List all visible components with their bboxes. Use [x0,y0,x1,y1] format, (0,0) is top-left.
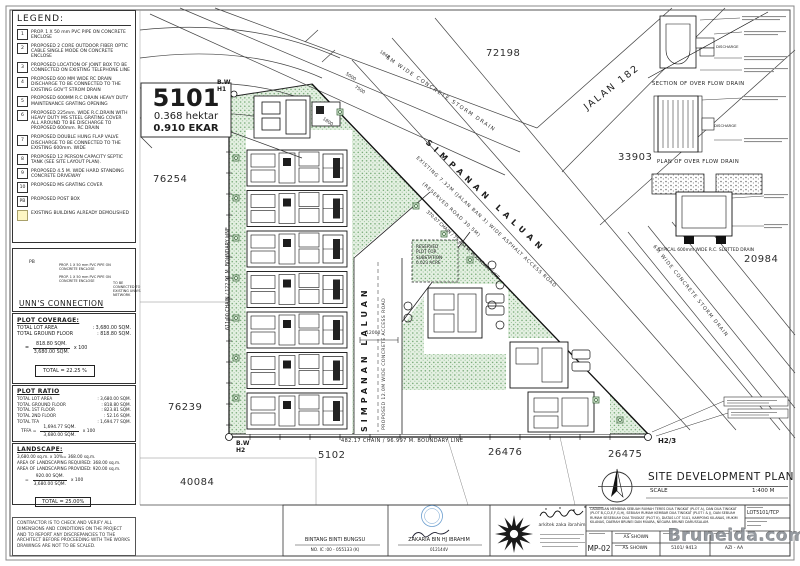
plot-number-76254: 76254 [153,174,187,185]
fraction-numerator: 818.80 SQM. [33,342,70,349]
project-number: LOT5101/TCP [747,511,779,516]
legend-item: 8PROPOSED 12 PERSON CAPACITY SEPTIC TANK… [17,154,131,165]
legend-text: PROPOSED 600 MM WIDE RC DRAIN DISCHARGE … [31,77,131,93]
legend-key: 1 [17,29,28,40]
legend-key: 7 [17,135,28,146]
landscape-line: AREA OF LANDSCAPING PROVIDED: 920.00 sq.… [17,466,131,472]
fraction-numerator: 920.00 SQM. [33,474,67,481]
landscape-panel: LANDSCAPE: 3,680.00 sq.m. x 10%= 368.00 … [12,443,136,505]
unns-pipe-label-1: PROP. 1 X 50 mm PVC PIPE ON CONCRETE ENC… [59,263,129,271]
legend-key: PB [17,196,28,207]
demolished-swatch [17,210,28,221]
detail-plan-title: PLAN OF OVER FLOW DRAIN [657,159,739,165]
detail2-microtext [742,96,788,142]
site-hektar: 0.368 hektar [141,111,231,122]
legend-key: 9 [17,168,28,179]
marker-bw-h1: B.WH1 [217,80,230,94]
scale-label: SCALE [650,488,668,494]
contractor-note-panel: CONTRACTOR IS TO CHECK AND VERIFY ALL DI… [12,517,136,556]
legend-item: 10PROPOSED MS GRATING COVER [17,182,131,193]
plot-number-26476: 26476 [488,447,522,458]
bw-h1-marker [231,91,237,97]
fraction-prefix: = [25,478,29,483]
landscape-line: AREA OF LANDSCAPING REQUIRED: 368.00 sq.… [17,460,131,466]
signature1-name: BINTANG BINTI BUNGSU [287,537,383,543]
landscape-title: LANDSCAPE: [17,446,131,453]
site-ekar: 0.910 EKAR [141,123,231,134]
table-row: TOTAL TFA: 1,694.77 SQM. [17,419,131,425]
drawing-number: MP-02 [587,544,611,553]
substation-label: RESERVED PLOT FOR SUBSTATION 0.023 ACRE [416,244,442,265]
plot-number-20984: 20984 [744,254,778,265]
plot-number-26475: 26475 [608,449,642,460]
fraction-denominator: 3,680.00 SQM. [40,432,78,438]
table-row: TOTAL GROUND FLOOR: 818.80 SQM. [17,332,131,338]
legend-key: 8 [17,154,28,165]
plot-coverage-panel: PLOT COVERAGE: TOTAL LOT AREA: 3,680.00 … [12,313,136,384]
fraction-suffix: x 100 [74,346,88,351]
detail-slotted-drain [652,174,788,244]
substation-line: SUBSTATION [416,255,442,260]
legend-item: 1PROP. 1 X 50 mm PVC PIPE ON CONCRETE EN… [17,29,131,40]
legend-item: 4PROPOSED 600 MM WIDE RC DRAIN DISCHARGE… [17,77,131,93]
legend-key: 10 [17,182,28,193]
legend-item: 9PROPOSED 4.5 M. WIDE HARD STANDING CONC… [17,168,131,179]
legend-text: PROPOSED 4.5 M. WIDE HARD STANDING CONCR… [31,168,131,179]
legend-key: 3 [17,62,28,73]
plot-ratio-title: PLOT RATIO [17,388,131,395]
coverage-fraction: = 818.80 SQM.3,680.00 SQM. x 100 [25,342,131,355]
scale-value: 1:400 M [752,488,774,494]
architect-stamp-star [495,515,533,553]
drawing-title: SITE DEVELOPMENT PLAN [648,471,794,483]
road-label-simpanan-vert: SIMPANAN LALUAN [360,286,369,432]
unns-arrow-note: TO BE CONNECTED TO EXISTING UNN'S NETWOR… [113,281,145,297]
detail-section-title: SECTION OF OVER FLOW DRAIN [652,81,745,87]
legend-key: 6 [17,110,28,121]
legend-text: EXISTING BUILDING ALREADY DEMOLISHED [31,210,129,216]
marker-h23: H2/3 [658,437,676,445]
signature1-id: NO. IC :00 - 055133 (K) [287,547,383,552]
legend-key: 5 [17,96,28,107]
legend-text: PROPOSED LOCATION OF JOINT BOX TO BE CON… [31,62,131,73]
discharge-label-1: DISCHARGE [716,44,739,49]
legend-text: PROP. 1 X 50 mm PVC PIPE ON CONCRETE ENC… [31,29,131,40]
legend-item: 7PROPOSED DOUBLE HUNG FLAP VALVE DISCHAR… [17,135,131,151]
ratio-fraction: TFFA = 1,694.77 SQM.3,680.00 SQM. x 100 [21,425,131,438]
plot-number-33903: 33903 [618,152,652,163]
firm-name: arkitek zaka ibrahim [534,523,590,528]
boundary-label-bottom: 482.17 CHAIN / 96.997 M. BOUNDARY LINE [341,438,463,444]
legend-text: PROPOSED 2 CORE OUTDOOR FIBER OPTIC CABL… [31,43,131,59]
legend-text: PROPOSED POST BOX [31,196,80,202]
detail-slotted-title: TYPICAL 600mm WIDE R.C. SLOTTED DRAIN [658,248,754,253]
marker-bw-h2: B.WH2 [236,441,249,455]
legend-key: 4 [17,77,28,88]
legend-item: 2PROPOSED 2 CORE OUTDOOR FIBER OPTIC CAB… [17,43,131,59]
row-value: : 1,694.77 SQM. [97,419,131,425]
fraction-suffix: x 100 [83,429,95,434]
row-value: : 818.80 SQM. [97,332,131,338]
scale-as-shown-2: AS SHOWN [613,546,657,551]
contractor-note: CONTRACTOR IS TO CHECK AND VERIFY ALL DI… [17,521,131,550]
legend-text: PROPOSED 600MM R.C DRAIN HEAVY DUTY MAIN… [31,96,131,107]
detail1-microtext [742,16,788,72]
legend-item: 6PROPOSED 225mm. WIDE R.C.DRAIN WITH HEA… [17,110,131,132]
legend-text: PROPOSED MS GRATING COVER [31,182,103,188]
jawi-script [540,506,586,517]
reference-number: 5101/ 9413 [662,546,706,551]
signature2-name: ZAKARIA BIN HJ IBRAHIM [392,537,486,543]
landscape-fraction: = 920.00 SQM.3,680.00 SQM. x 100 [25,474,131,487]
plot-number-76239: 76239 [168,402,202,413]
row-label: TOTAL GROUND FLOOR [17,332,73,338]
drawing-sheet: LEGEND: 1PROP. 1 X 50 mm PVC PIPE ON CON… [0,0,800,566]
legend-text: PROPOSED DOUBLE HUNG FLAP VALVE DISCHARG… [31,135,131,151]
legend-text: PROPOSED 12 PERSON CAPACITY SEPTIC TANK … [31,154,131,165]
marker-h2-text: H2 [236,448,249,455]
approval-stamp-blue [422,506,443,527]
unns-title: UNN'S CONNECTION [19,299,104,308]
scale-as-shown-1: AS SHOWN [614,535,658,540]
plot-number-72198: 72198 [486,48,520,59]
project-description: CADANGAN MEMBINA SEBUAH RUMAH TERES DUA … [590,507,740,524]
fraction-denominator: 3,680.00 SQM. [33,481,67,487]
legend-item-demolished: EXISTING BUILDING ALREADY DEMOLISHED [17,210,131,221]
fraction-prefix: TFFA = [21,429,36,434]
bw-h2-marker [226,434,233,441]
legend-text: PROPOSED 225mm. WIDE R.C.DRAIN WITH HEAV… [31,110,131,132]
boundary-label-left: 611.00 CHAIN / 122.91 M. BOUNDARY LINE [226,227,231,330]
fraction-suffix: x 100 [71,478,83,483]
fraction-prefix: = [25,346,29,351]
legend-panel: LEGEND: 1PROP. 1 X 50 mm PVC PIPE ON CON… [12,10,136,243]
road-label-proposed: PROPOSED 12.0M WIDE CONCRETE ACCESS ROAD [382,298,387,430]
plot-number-5102: 5102 [318,450,345,461]
legend-title: LEGEND: [17,14,131,26]
discharge-label-2: DISCHARGE [714,123,737,128]
drawn-by: AZI - AA [712,546,756,551]
h23-marker [645,434,652,441]
unns-connection-panel: PB PROP. 1 X 50 mm PVC PIPE ON CONCRETE … [12,248,136,312]
fraction-denominator: 3,680.00 SQM. [33,349,70,355]
legend-item: 3PROPOSED LOCATION OF JOINT BOX TO BE CO… [17,62,131,73]
plot-number-40084: 40084 [180,477,214,488]
unns-pb-label: PB [29,260,35,265]
legend-item: PBPROPOSED POST BOX [17,196,131,207]
coverage-result: TOTAL = 22.25 % [35,365,95,377]
plot-coverage-title: PLOT COVERAGE: [17,317,131,324]
fraction-numerator: 1,694.77 SQM. [40,425,78,432]
tip-callouts [652,397,788,436]
legend-item: 5PROPOSED 600MM R.C DRAIN HEAVY DUTY MAI… [17,96,131,107]
firm-address-microtext [540,534,586,547]
watermark: Bruneida.com [668,526,800,546]
dim-12000: 12000 [366,331,380,336]
landscape-result: TOTAL = 25.00% [35,497,91,507]
row-label: TOTAL TFA [17,419,39,425]
signature2-id: 012144V [392,547,486,552]
substation-line: 0.023 ACRE [416,260,442,265]
marker-h1-text: H1 [217,87,230,94]
legend-key: 2 [17,43,28,54]
plot-ratio-panel: PLOT RATIO TOTAL LOT AREA: 3,680.00 SQM.… [12,385,136,442]
